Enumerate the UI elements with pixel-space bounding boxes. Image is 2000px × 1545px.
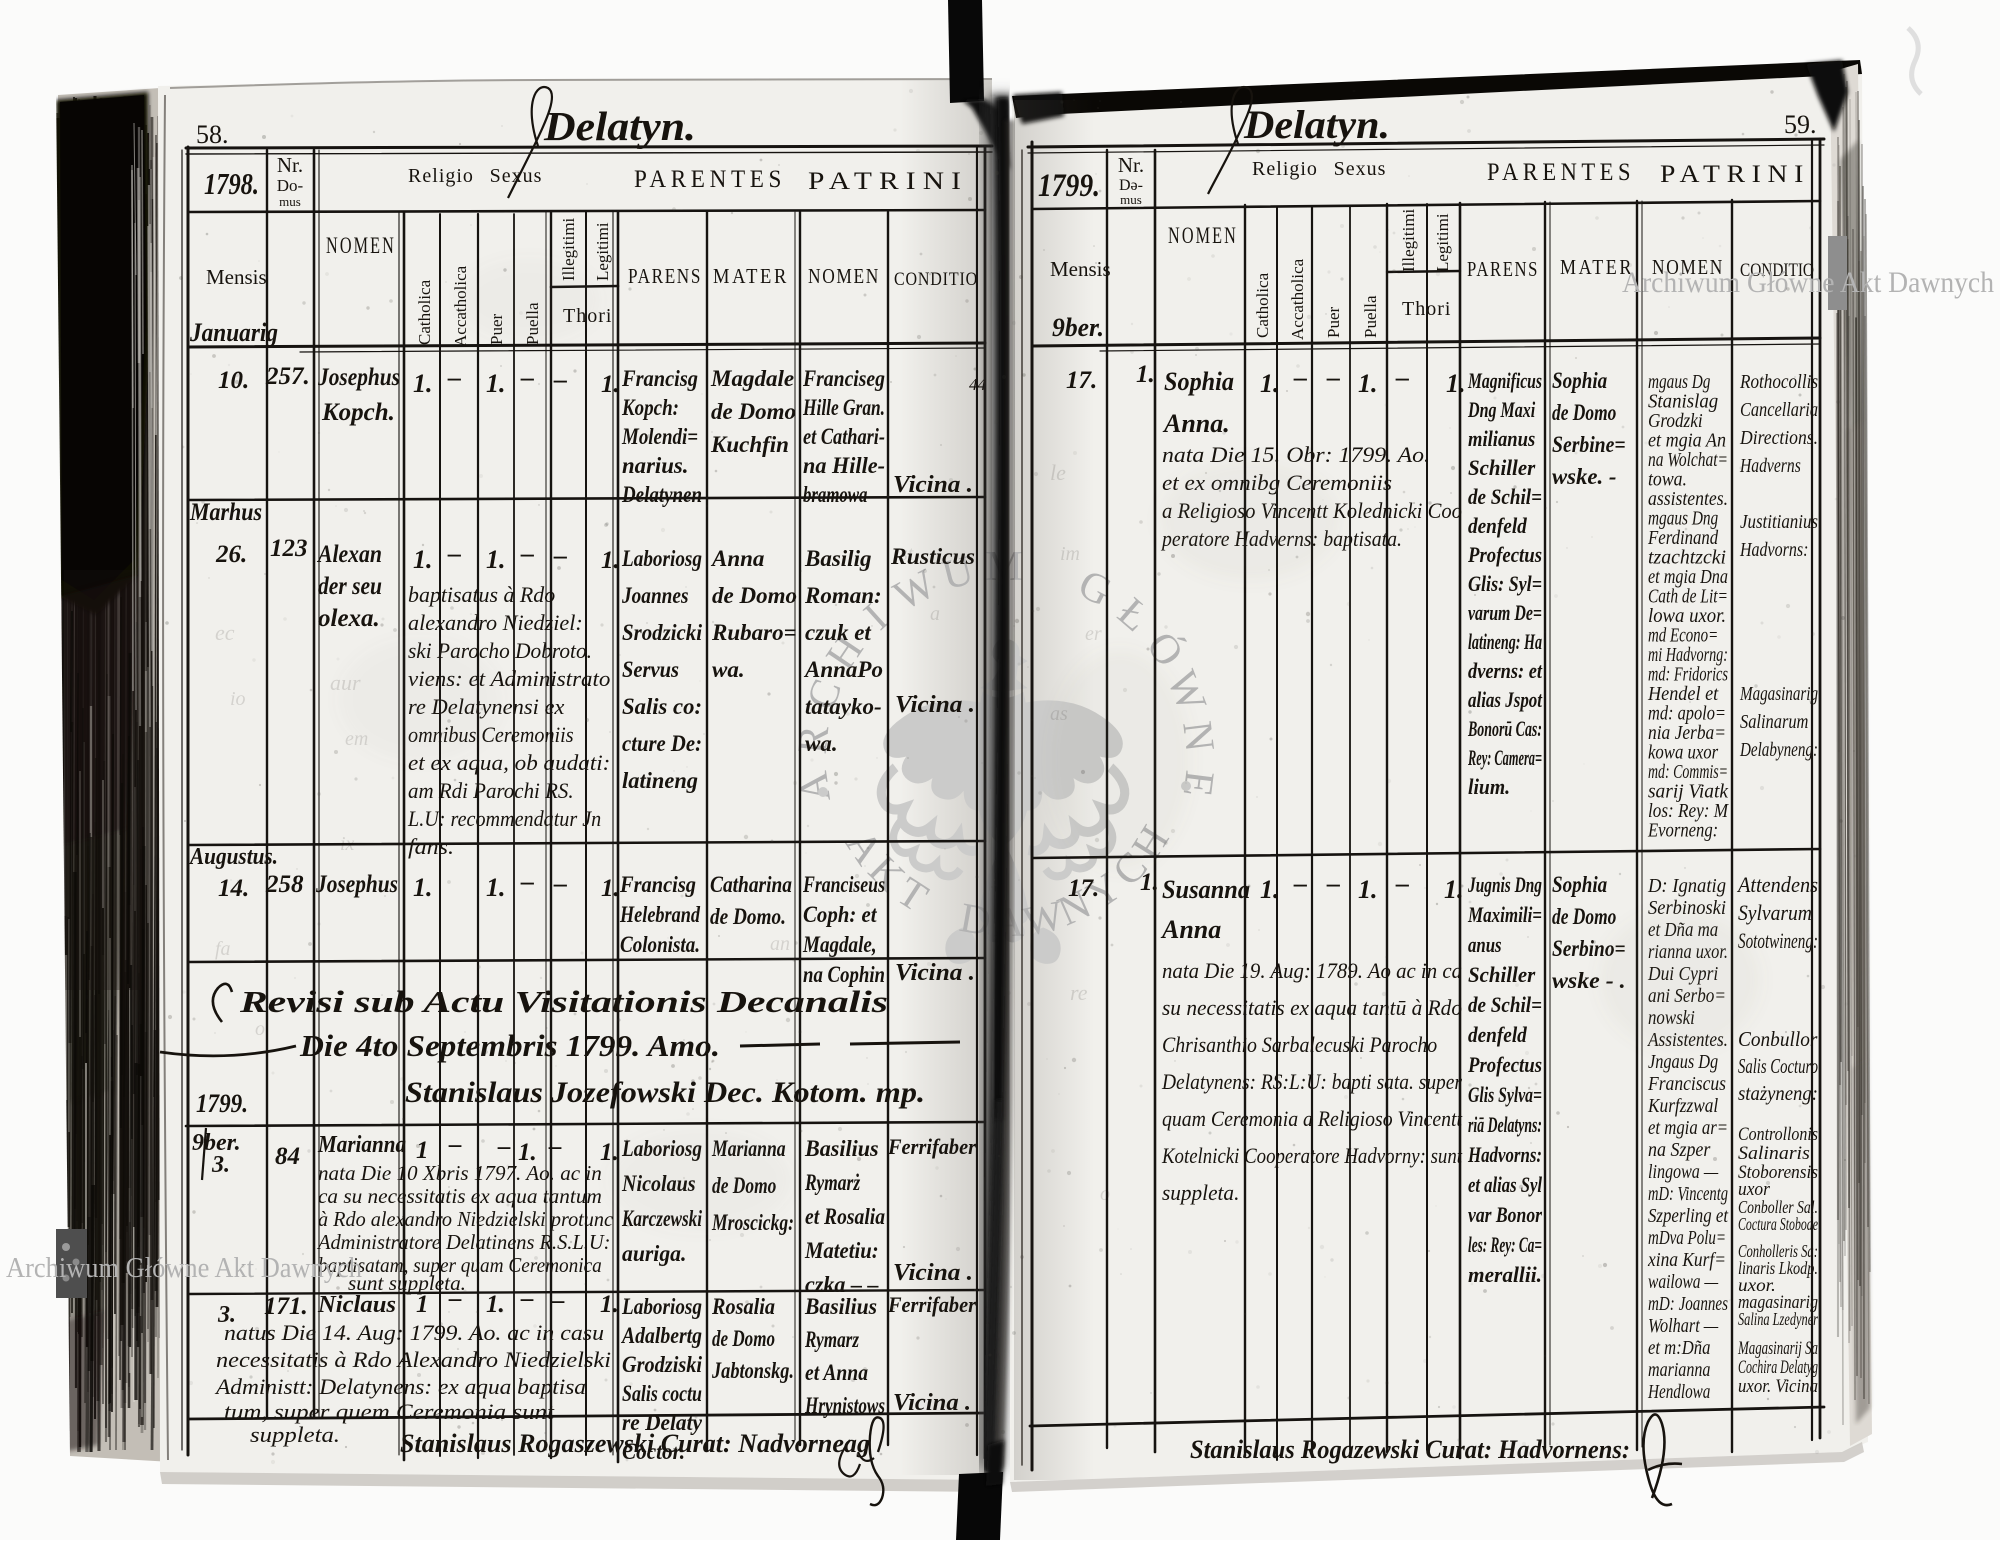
svg-text:der seu: der seu <box>318 573 382 600</box>
svg-text:denfeld: denfeld <box>1468 513 1528 538</box>
svg-text:alexandro Niedziel:: alexandro Niedziel: <box>408 610 583 635</box>
svg-text:Stanislaus Jozefowski Dec. Kot: Stanislaus Jozefowski Dec. Kotom. mp. <box>405 1076 925 1109</box>
svg-text:Vicina .: Vicina . <box>893 1260 973 1286</box>
svg-text:1.: 1. <box>1358 369 1378 398</box>
svg-text:–: – <box>551 1287 565 1314</box>
svg-text:de Schil=: de Schil= <box>1468 484 1542 509</box>
svg-text:PATRINI: PATRINI <box>808 168 968 195</box>
svg-text:Anna: Anna <box>1160 915 1221 944</box>
svg-text:cture De:: cture De: <box>622 731 702 756</box>
svg-text:–: – <box>1395 869 1409 898</box>
svg-text:Marianna: Marianna <box>317 1132 406 1158</box>
svg-text:Hrynistows: Hrynistows <box>804 1393 885 1418</box>
svg-text:Catharina: Catharina <box>710 872 792 897</box>
svg-text:Kopch.: Kopch. <box>321 399 395 426</box>
svg-text:stażyneng:: stażyneng: <box>1738 1081 1818 1105</box>
svg-text:Francisg: Francisg <box>619 872 696 897</box>
svg-text:Kotelnicki Cooperatore Hadvorn: Kotelnicki Cooperatore Hadvorny: sunt <box>1161 1143 1463 1168</box>
svg-text:Grodziski: Grodziski <box>622 1352 703 1377</box>
svg-text:Cochira Delatyg: Cochira Delatyg <box>1738 1357 1818 1378</box>
svg-text:Vicina .: Vicina . <box>893 472 973 498</box>
svg-text:1.: 1. <box>486 873 506 902</box>
svg-text:o: o <box>1100 1183 1110 1205</box>
svg-text:Sexus: Sexus <box>490 165 543 187</box>
svg-text:Wolhart —: Wolhart — <box>1648 1315 1718 1337</box>
svg-text:Archiwum Główne Akt Dawnych: Archiwum Główne Akt Dawnych <box>1622 266 1994 299</box>
svg-text:et Cathari-: et Cathari- <box>803 424 885 449</box>
svg-text:10.: 10. <box>218 367 249 394</box>
svg-text:les: Rey: Ca=: les: Rey: Ca= <box>1468 1232 1542 1257</box>
svg-text:258: 258 <box>265 871 304 898</box>
svg-text:latineng: latineng <box>622 768 698 793</box>
svg-text:84: 84 <box>275 1143 300 1170</box>
svg-text:et Anna: et Anna <box>805 1360 868 1385</box>
svg-text:Hendlowa: Hendlowa <box>1647 1381 1710 1403</box>
svg-text:PARENS: PARENS <box>628 264 702 288</box>
svg-text:Kopch:: Kopch: <box>621 395 679 420</box>
svg-text:PATRINI: PATRINI <box>1660 161 1810 188</box>
svg-text:–: – <box>447 363 461 392</box>
svg-text:Coctura Stobode: Coctura Stobode <box>1738 1214 1818 1234</box>
svg-text:L.U: recommendatur Jn: L.U: recommendatur Jn <box>407 806 601 831</box>
svg-text:AnnaPo: AnnaPo <box>803 657 883 682</box>
svg-text:Mensis: Mensis <box>206 265 267 289</box>
svg-text:et m:Dña: et m:Dña <box>1648 1337 1710 1359</box>
svg-text:Molendi=: Molendi= <box>621 424 698 449</box>
svg-text:1.: 1. <box>601 875 620 902</box>
svg-text:Serbine=: Serbine= <box>1552 432 1626 457</box>
svg-text:lium.: lium. <box>1468 774 1510 799</box>
svg-text:Salinaris: Salinaris <box>1738 1143 1810 1164</box>
svg-text:1.: 1. <box>486 1291 505 1318</box>
svg-text:Puella: Puella <box>1361 295 1380 338</box>
svg-text:wa.: wa. <box>712 657 745 682</box>
svg-text:–: – <box>548 1133 562 1160</box>
svg-text:–: – <box>1293 363 1307 392</box>
svg-text:–: – <box>1293 869 1307 898</box>
svg-text:Dng Maxi: Dng Maxi <box>1467 397 1536 422</box>
svg-text:Josephus: Josephus <box>315 871 398 898</box>
svg-text:su necessitatis ex aqua tantū: su necessitatis ex aqua tantū à Rdo <box>1162 995 1462 1020</box>
svg-text:–: – <box>553 541 567 570</box>
svg-text:Basilius: Basilius <box>804 1136 879 1161</box>
svg-text:Puer: Puer <box>1324 307 1343 339</box>
svg-text:Evorneng:: Evorneng: <box>1647 820 1718 842</box>
svg-text:–: – <box>520 363 534 392</box>
svg-text:1.: 1. <box>413 873 433 902</box>
svg-text:Franciscus: Franciscus <box>1647 1073 1726 1095</box>
svg-text:et mgia ar=: et mgia ar= <box>1648 1117 1728 1139</box>
svg-text:Niclaus: Niclaus <box>317 1292 396 1318</box>
svg-text:Joannes: Joannes <box>621 583 688 608</box>
svg-text:Legitimi: Legitimi <box>1433 213 1452 272</box>
svg-text:Rymarz: Rymarz <box>804 1327 859 1352</box>
svg-text:Nr.: Nr. <box>1118 153 1144 177</box>
svg-text:Profectus: Profectus <box>1467 1052 1542 1077</box>
svg-text:czuk et: czuk et <box>805 620 871 645</box>
svg-text:wske. -: wske. - <box>1552 464 1616 489</box>
svg-text:na Szper: na Szper <box>1648 1139 1711 1161</box>
svg-text:Anna.: Anna. <box>1162 409 1230 438</box>
svg-text:Archiwum Główne Akt Dawnych: Archiwum Główne Akt Dawnych <box>6 1252 362 1284</box>
svg-text:Laboriosg: Laboriosg <box>621 1294 702 1319</box>
svg-text:var Bonor: var Bonor <box>1468 1202 1542 1227</box>
svg-text:ix: ix <box>340 833 355 855</box>
svg-text:PARENTES: PARENTES <box>1487 159 1635 186</box>
svg-text:Ferrifaber: Ferrifaber <box>887 1292 976 1317</box>
svg-text:suppleta.: suppleta. <box>250 1422 340 1447</box>
svg-text:NOMEN: NOMEN <box>808 264 880 288</box>
svg-text:narius.: narius. <box>622 453 689 478</box>
svg-text:Basilius: Basilius <box>804 1294 877 1319</box>
svg-text:re: re <box>1070 980 1088 1005</box>
svg-text:anus: anus <box>1468 932 1502 957</box>
svg-text:–: – <box>1326 363 1340 392</box>
svg-text:NOMEN: NOMEN <box>1168 223 1238 248</box>
svg-text:1.: 1. <box>413 369 433 398</box>
svg-text:Directions.: Directions. <box>1739 427 1818 449</box>
svg-text:Salina Lzedyner: Salina Lzedyner <box>1738 1309 1819 1329</box>
svg-text:mD: Vincentg: mD: Vincentg <box>1648 1183 1728 1205</box>
svg-text:Marhus: Marhus <box>189 499 262 526</box>
svg-text:denfeld: denfeld <box>1468 1022 1528 1047</box>
svg-text:im: im <box>1060 543 1080 565</box>
svg-text:–: – <box>1395 363 1409 392</box>
svg-text:Stanislaus Rogazewski Curat: H: Stanislaus Rogazewski Curat: Hadvornens: <box>1190 1435 1630 1464</box>
svg-text:Delatynen: Delatynen <box>621 482 702 507</box>
svg-text:1799.: 1799. <box>196 1089 248 1118</box>
svg-text:–: – <box>1326 869 1340 898</box>
svg-text:Roman:: Roman: <box>804 583 882 608</box>
svg-text:Rymarż: Rymarż <box>804 1170 860 1195</box>
svg-text:Catholica: Catholica <box>1253 272 1272 338</box>
svg-text:Magdale,: Magdale, <box>802 932 876 957</box>
svg-text:a: a <box>930 603 940 625</box>
svg-text:Alexan: Alexan <box>316 541 382 568</box>
svg-text:natus Die 14. Aug: 1799. Ao. a: natus Die 14. Aug: 1799. Ao. ac in casu <box>224 1320 604 1345</box>
svg-text:Adalbertg: Adalbertg <box>620 1323 702 1348</box>
svg-text:–: – <box>448 1131 462 1158</box>
svg-text:Cancellaria: Cancellaria <box>1740 399 1818 421</box>
svg-text:Stanislaus Rogaszewski Curat:: Stanislaus Rogaszewski Curat: Nadvorneag <box>400 1429 870 1458</box>
svg-text:de Domo: de Domo <box>712 1326 775 1351</box>
svg-text:–: – <box>520 539 534 568</box>
svg-text:Hille Gran.: Hille Gran. <box>802 395 885 420</box>
svg-text:Delabyneng:: Delabyneng: <box>1739 739 1818 761</box>
svg-text:1.: 1. <box>413 545 433 574</box>
svg-text:Jugnis Dng: Jugnis Dng <box>1467 872 1542 897</box>
svg-text:Susanna: Susanna <box>1162 875 1250 904</box>
svg-text:Vicina .: Vicina . <box>895 960 975 986</box>
svg-text:1.: 1. <box>1260 875 1280 904</box>
svg-text:Vicina .: Vicina . <box>895 692 975 718</box>
svg-text:9ber.: 9ber. <box>1052 313 1104 342</box>
svg-text:nata Die 10 Xbris 1797. Ao. ac: nata Die 10 Xbris 1797. Ao. ac in <box>318 1161 602 1185</box>
svg-text:Glis Sylva=: Glis Sylva= <box>1468 1082 1542 1107</box>
svg-text:le: le <box>1050 460 1066 485</box>
svg-text:mD: Joannes: mD: Joannes <box>1648 1293 1728 1315</box>
svg-text:milianus: milianus <box>1468 426 1535 451</box>
svg-text:–: – <box>497 1133 511 1160</box>
svg-text:Bonorū Cas:: Bonorū Cas: <box>1467 716 1542 741</box>
svg-text:de Schil=: de Schil= <box>1468 992 1542 1017</box>
svg-text:–: – <box>447 539 461 568</box>
svg-text:Magasinarij Sa: Magasinarij Sa <box>1737 1338 1818 1359</box>
svg-text:Hadverns: Hadverns <box>1739 455 1801 477</box>
svg-text:Januarig: Januarig <box>189 318 278 347</box>
svg-text:marianna: marianna <box>1648 1359 1710 1381</box>
svg-text:Colonista.: Colonista. <box>620 932 700 957</box>
svg-text:1.: 1. <box>1260 369 1280 398</box>
svg-text:alias Jspot: alias Jspot <box>1468 687 1543 712</box>
svg-text:1799.: 1799. <box>1038 168 1100 204</box>
svg-text:de Domo: de Domo <box>711 399 796 424</box>
svg-text:MATER: MATER <box>713 264 789 288</box>
svg-text:Administratore Delatinens R.S.: Administratore Delatinens R.S.L.U: <box>316 1230 610 1254</box>
svg-text:Profectus: Profectus <box>1467 542 1542 567</box>
svg-text:Sylvarum: Sylvarum <box>1738 900 1812 925</box>
svg-text:Josephus: Josephus <box>317 364 400 391</box>
svg-text:PARENS: PARENS <box>1467 257 1539 281</box>
svg-text:1.: 1. <box>600 1139 619 1166</box>
svg-text:PARENTES: PARENTES <box>634 166 786 193</box>
svg-text:auriga.: auriga. <box>622 1241 686 1266</box>
svg-text:Ferrifaber: Ferrifaber <box>887 1134 976 1159</box>
svg-text:Rosalia: Rosalia <box>711 1294 775 1319</box>
svg-text:Franciseus: Franciseus <box>802 872 885 897</box>
svg-text:Schiller: Schiller <box>1468 455 1536 480</box>
svg-text:1: 1 <box>416 1137 429 1164</box>
svg-text:Catholica: Catholica <box>415 279 434 345</box>
svg-text:59.: 59. <box>1784 110 1817 139</box>
svg-text:Hadvorns:: Hadvorns: <box>1467 1142 1542 1167</box>
svg-text:58.: 58. <box>196 120 229 149</box>
svg-text:Jabtonskg.: Jabtonskg. <box>711 1358 794 1383</box>
svg-text:uxor. Vicina: uxor. Vicina <box>1738 1376 1818 1397</box>
svg-text:1: 1 <box>416 1291 429 1318</box>
svg-text:Jngaus Dg: Jngaus Dg <box>1648 1051 1718 1073</box>
svg-text:io: io <box>230 688 246 710</box>
svg-text:mDva Polu=: mDva Polu= <box>1648 1227 1726 1249</box>
svg-text:Legitimi: Legitimi <box>593 222 612 281</box>
svg-text:st: st <box>900 543 914 565</box>
svg-text:merallii.: merallii. <box>1468 1262 1542 1287</box>
svg-text:1798.: 1798. <box>204 166 259 201</box>
svg-text:Salis co:: Salis co: <box>622 694 702 719</box>
svg-text:Revisi sub Actu Visitationis D: Revisi sub Actu Visitationis Decanalis <box>239 984 888 1019</box>
svg-text:Franciseg: Franciseg <box>802 366 885 391</box>
svg-text:1.: 1. <box>1444 875 1464 904</box>
svg-text:de Domo: de Domo <box>1552 904 1616 929</box>
svg-text:123: 123 <box>270 535 308 562</box>
svg-text:o: o <box>255 1018 265 1040</box>
svg-text:1.: 1. <box>600 1291 619 1318</box>
svg-text:Attendens: Attendens <box>1736 872 1818 897</box>
svg-text:–: – <box>520 867 534 896</box>
svg-text:Controllonis: Controllonis <box>1738 1124 1818 1145</box>
svg-text:Delatyn.: Delatyn. <box>1243 102 1390 147</box>
svg-text:44: 44 <box>969 375 987 394</box>
svg-text:Salis coctu: Salis coctu <box>622 1381 702 1406</box>
svg-text:mus: mus <box>1120 192 1142 207</box>
svg-text:Salis Cocturo: Salis Cocturo <box>1738 1054 1818 1078</box>
svg-text:NOMEN: NOMEN <box>326 233 396 258</box>
svg-text:Do-: Do- <box>277 176 304 195</box>
svg-text:Glis: Syl=: Glis: Syl= <box>1468 571 1542 596</box>
svg-text:quam Ceremonia a Religioso Vin: quam Ceremonia a Religioso Vincentt <box>1162 1106 1463 1131</box>
svg-text:et alias Syl: et alias Syl <box>1468 1172 1543 1197</box>
svg-text:Servus: Servus <box>622 657 679 682</box>
svg-text:Thori: Thori <box>1402 298 1451 320</box>
svg-text:an: an <box>770 933 790 955</box>
svg-text:er: er <box>1085 623 1102 645</box>
svg-text:wa.: wa. <box>805 731 838 756</box>
svg-text:Salinarum: Salinarum <box>1740 711 1808 733</box>
svg-text:à Rdo alexandro Niedzielski pr: à Rdo alexandro Niedzielski protunc <box>318 1207 614 1231</box>
svg-text:fa: fa <box>215 938 231 960</box>
svg-text:ec: ec <box>215 620 235 645</box>
svg-text:Delatyn.: Delatyn. <box>543 103 696 149</box>
svg-text:mus: mus <box>279 194 301 209</box>
svg-text:1.: 1. <box>1136 361 1155 388</box>
svg-text:Accatholica: Accatholica <box>1288 258 1307 340</box>
svg-text:wailowa —: wailowa — <box>1648 1271 1718 1293</box>
svg-text:–: – <box>448 1285 462 1312</box>
svg-text:Religio: Religio <box>408 165 474 187</box>
svg-text:olexa.: olexa. <box>318 605 380 632</box>
svg-text:1.: 1. <box>486 369 506 398</box>
svg-text:Anna: Anna <box>710 546 764 571</box>
svg-text:Laboriosg: Laboriosg <box>621 546 702 571</box>
svg-text:Basilig: Basilig <box>804 546 871 571</box>
svg-text:171.: 171. <box>264 1293 308 1320</box>
svg-text:varum De=: varum De= <box>1468 600 1542 625</box>
svg-text:Hadvorns:: Hadvorns: <box>1739 539 1808 561</box>
svg-text:Vicina .: Vicina . <box>893 1390 971 1416</box>
svg-text:Sophia: Sophia <box>1164 367 1234 396</box>
svg-text:am Rdi Parochi RS.: am Rdi Parochi RS. <box>408 778 574 803</box>
svg-text:Sophia: Sophia <box>1552 872 1607 897</box>
svg-text:Magasinarig: Magasinarig <box>1739 683 1818 705</box>
svg-text:1.: 1. <box>601 547 620 574</box>
svg-text:Francisg: Francisg <box>621 366 698 391</box>
svg-text:tum, super quem Ceremonia sunt: tum, super quem Ceremonia sunt <box>224 1399 555 1424</box>
svg-text:Magdale: Magdale <box>710 366 794 391</box>
svg-text:1.: 1. <box>601 371 620 398</box>
svg-text:Conbullor: Conbullor <box>1738 1027 1818 1051</box>
svg-text:17.: 17. <box>1068 875 1099 902</box>
svg-text:1.: 1. <box>1446 369 1466 398</box>
svg-text:Matetiu:: Matetiu: <box>804 1238 878 1263</box>
svg-text:fans.: fans. <box>408 834 454 859</box>
svg-text:Helebrand: Helebrand <box>619 902 700 927</box>
svg-text:Kurfzzwal: Kurfzzwal <box>1647 1095 1718 1117</box>
svg-text:Schiller: Schiller <box>1468 962 1536 987</box>
svg-text:Magnificus: Magnificus <box>1467 368 1542 393</box>
svg-text:Rey: Camera=: Rey: Camera= <box>1467 745 1542 770</box>
svg-text:1.: 1. <box>1140 869 1159 896</box>
svg-text:et Rosalia: et Rosalia <box>805 1204 885 1229</box>
svg-text:Szperling et: Szperling et <box>1648 1205 1728 1227</box>
svg-text:latineng: Ha: latineng: Ha <box>1468 629 1542 654</box>
svg-text:xina Kurf=: xina Kurf= <box>1647 1249 1726 1271</box>
svg-text:CONDITIO: CONDITIO <box>894 269 978 290</box>
svg-text:na Hille-: na Hille- <box>803 453 885 478</box>
svg-text:Delatynens: RS:L:U: bapti sata: Delatynens: RS:L:U: bapti sata. super <box>1161 1069 1462 1094</box>
svg-text:nata Die 19. Aug: 1789. Ao ac: nata Die 19. Aug: 1789. Ao ac in ca <box>1162 958 1462 983</box>
svg-text:Nr.: Nr. <box>277 153 303 177</box>
svg-text:Srodzicki: Srodzicki <box>622 620 703 645</box>
svg-text:Sophia: Sophia <box>1552 368 1607 393</box>
svg-text:baptisatus à Rdo: baptisatus à Rdo <box>408 582 555 607</box>
svg-text:1.: 1. <box>1358 875 1378 904</box>
svg-text:de Domo.: de Domo. <box>710 904 786 929</box>
svg-text:257.: 257. <box>265 363 310 390</box>
svg-text:Mensis: Mensis <box>1050 257 1111 281</box>
svg-text:Illegitimi: Illegitimi <box>1399 208 1418 272</box>
svg-text:bramowa: bramowa <box>803 482 867 507</box>
svg-text:ca su necessitatis ex aqua tan: ca su necessitatis ex aqua tantum <box>318 1184 602 1208</box>
svg-text:14.: 14. <box>218 875 249 902</box>
svg-text:3.: 3. <box>211 1152 230 1178</box>
svg-text:Religio: Religio <box>1252 158 1318 180</box>
svg-text:–: – <box>553 365 567 394</box>
svg-text:Chrisanthio Sarbalecuski Paroc: Chrisanthio Sarbalecuski Parocho <box>1162 1032 1437 1057</box>
svg-text:26.: 26. <box>215 541 247 568</box>
svg-text:necessitatis à Rdo Alexandro N: necessitatis à Rdo Alexandro Niedzielski <box>216 1347 611 1372</box>
svg-text:riā Delatyns:: riā Delatyns: <box>1468 1112 1542 1137</box>
svg-text:nata Die 15. Obr: 1799. Ao.: nata Die 15. Obr: 1799. Ao. <box>1162 442 1430 467</box>
svg-text:–: – <box>553 869 567 898</box>
svg-text:1.: 1. <box>486 545 506 574</box>
svg-text:Kuchfin: Kuchfin <box>710 432 789 457</box>
svg-text:de Domo: de Domo <box>712 583 797 608</box>
svg-text:lingowa —: lingowa — <box>1648 1161 1718 1183</box>
svg-text:–: – <box>520 1285 534 1312</box>
svg-text:17.: 17. <box>1066 367 1097 394</box>
svg-text:suppleta.: suppleta. <box>1162 1180 1239 1205</box>
svg-text:Maximili=: Maximili= <box>1467 902 1542 927</box>
svg-text:tatayko-: tatayko- <box>805 694 882 719</box>
svg-text:de Domo: de Domo <box>1552 400 1616 425</box>
svg-text:Rothocollis: Rothocollis <box>1739 371 1818 393</box>
svg-text:Rubaro=: Rubaro= <box>711 620 797 645</box>
svg-text:Administt: Delatynens: ex aqua: Administt: Delatynens: ex aqua baptisa <box>214 1374 586 1399</box>
svg-text:Augustus.: Augustus. <box>188 844 278 870</box>
svg-text:D: Ignatig: D: Ignatig <box>1647 875 1726 897</box>
svg-text:Coph: et: Coph: et <box>803 902 877 927</box>
svg-text:dverns: et: dverns: et <box>1468 658 1543 683</box>
svg-text:Justitianius: Justitianius <box>1740 511 1818 533</box>
